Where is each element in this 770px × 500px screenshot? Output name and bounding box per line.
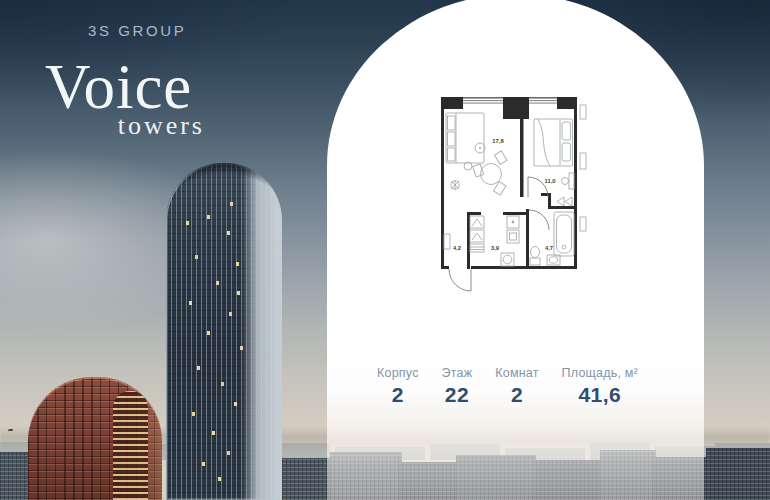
project-logo: Voice [45, 56, 285, 119]
stat-building-value: 2 [377, 383, 419, 407]
stat-area: Площадь, м² 41,6 [562, 366, 638, 407]
stat-floor-value: 22 [442, 383, 473, 407]
stat-building-label: Корпус [377, 366, 419, 380]
project-logo-subtitle: towers [46, 113, 205, 139]
floor-plan: 17,8 11,0 4,2 3,9 4,7 [441, 97, 591, 297]
stat-rooms-value: 2 [495, 383, 538, 407]
city-building [706, 448, 770, 500]
stat-rooms: Комнат 2 [495, 366, 538, 407]
blue-tower-photo [166, 163, 282, 500]
area-storage: 3,9 [491, 245, 500, 251]
area-bathroom: 4,7 [545, 245, 553, 251]
developer-logo: 3S GROUP [88, 22, 288, 39]
listing-hero: 3S GROUP Voice towers [0, 0, 770, 500]
red-tower-photo [28, 377, 162, 500]
stat-building: Корпус 2 [377, 366, 419, 407]
stat-area-label: Площадь, м² [562, 366, 638, 380]
stat-floor-label: Этаж [442, 366, 473, 380]
area-bedroom: 11,0 [545, 178, 556, 184]
apartment-stats: Корпус 2 Этаж 22 Комнат 2 Площадь, м² 41… [327, 366, 688, 407]
arch-panel: 17,8 11,0 4,2 3,9 4,7 Корпус 2 Этаж 22 К… [327, 0, 704, 500]
stat-rooms-label: Комнат [495, 366, 538, 380]
building-windows [706, 448, 770, 500]
red-tower-lit-facade [113, 391, 148, 500]
area-living-room: 17,8 [492, 138, 504, 144]
stat-area-value: 41,6 [562, 383, 638, 407]
stat-floor: Этаж 22 [442, 366, 473, 407]
area-hallway: 4,2 [453, 245, 461, 251]
